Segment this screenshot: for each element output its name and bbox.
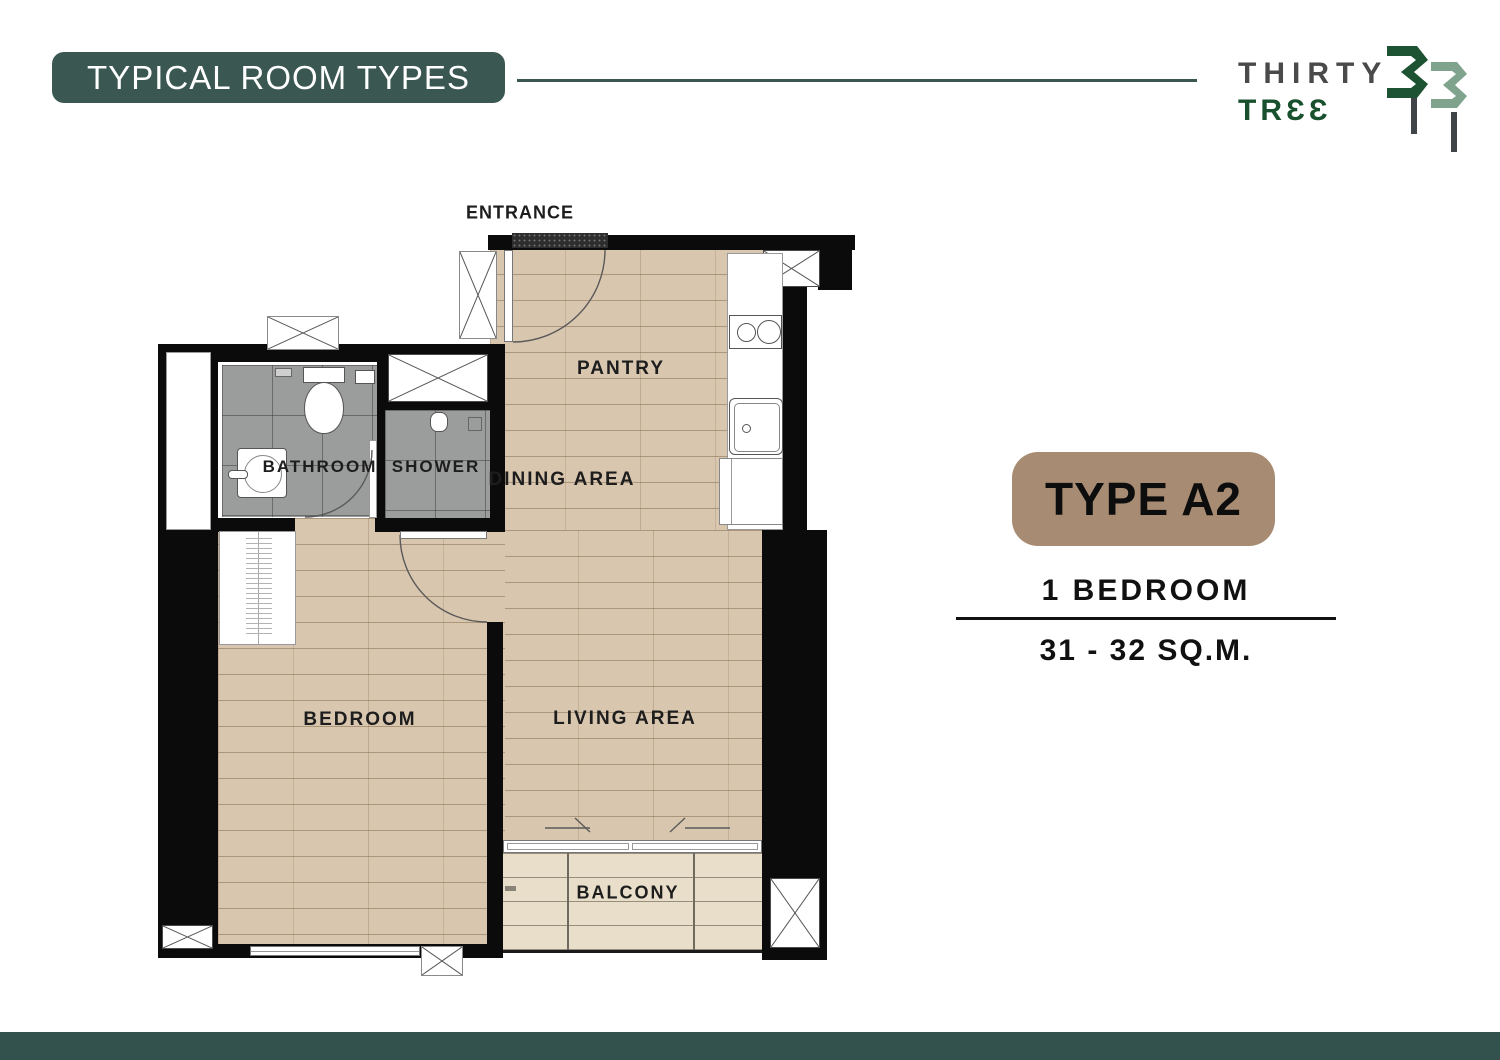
sink-basin — [734, 403, 780, 452]
ac-unit-icon — [421, 946, 463, 976]
shaft-x-icon — [162, 925, 213, 949]
toilet-tank — [303, 367, 345, 383]
room-label-living-area: LIVING AREA — [553, 708, 697, 730]
wall-segment — [375, 518, 505, 532]
wardrobe-icon — [219, 531, 296, 645]
floor-plan: ENTRANCE PANTRY DINING AREA BATHROOM SHO… — [0, 0, 1500, 1060]
room-label-entrance: ENTRANCE — [466, 203, 574, 224]
ac-ledge-icon — [267, 316, 339, 350]
info-divider-line — [956, 617, 1336, 620]
footer-bar — [0, 1032, 1500, 1060]
refrigerator-icon — [719, 458, 783, 525]
balcony-handle-icon — [505, 886, 516, 891]
unit-bedrooms-label: 1 BEDROOM — [956, 574, 1336, 608]
room-label-dining-area: DINING AREA — [489, 469, 636, 491]
unit-type-badge: TYPE A2 — [1012, 452, 1275, 546]
room-label-shower: SHOWER — [392, 457, 481, 477]
room-label-bathroom: BATHROOM — [263, 457, 378, 477]
sliding-door-panel — [507, 843, 629, 850]
toilet-icon — [304, 382, 344, 434]
sliding-door — [503, 840, 762, 853]
wall-segment — [783, 250, 807, 530]
unit-type-label: TYPE A2 — [1045, 472, 1242, 526]
sliding-door-panel — [632, 843, 758, 850]
deck-joint — [693, 853, 695, 950]
entrance-door-leaf — [504, 250, 513, 342]
wall-segment — [218, 518, 295, 532]
shower-drain-icon — [468, 417, 482, 431]
faucet-icon — [275, 368, 292, 377]
room-label-pantry: PANTRY — [577, 358, 665, 380]
unit-area-label: 31 - 32 SQ.M. — [956, 634, 1336, 668]
entrance-mat — [512, 233, 608, 248]
wall-segment — [377, 362, 385, 518]
room-label-bedroom: BEDROOM — [303, 709, 416, 731]
bedroom-door-leaf — [400, 531, 487, 539]
kitchen-sink-icon — [729, 398, 783, 455]
deck-joint — [567, 853, 569, 950]
shaft-x-icon — [770, 878, 820, 948]
shower-door-leaf — [369, 440, 377, 518]
stove-burner-icon — [757, 320, 781, 344]
faucet-icon — [742, 424, 751, 433]
structural-column — [166, 352, 211, 530]
room-label-balcony: BALCONY — [577, 883, 680, 904]
paper-holder-icon — [355, 370, 375, 384]
stove-burner-icon — [737, 323, 756, 342]
wall-segment — [818, 250, 852, 290]
window — [250, 946, 420, 956]
shower-head-icon — [430, 412, 448, 432]
wall-segment — [487, 622, 503, 958]
faucet-icon — [228, 470, 248, 479]
floor-living-area — [503, 530, 762, 840]
hanger-lines — [246, 538, 272, 638]
cabinet-line — [731, 459, 732, 524]
shoe-cabinet-icon — [459, 251, 497, 339]
storage-x-icon — [388, 354, 488, 402]
